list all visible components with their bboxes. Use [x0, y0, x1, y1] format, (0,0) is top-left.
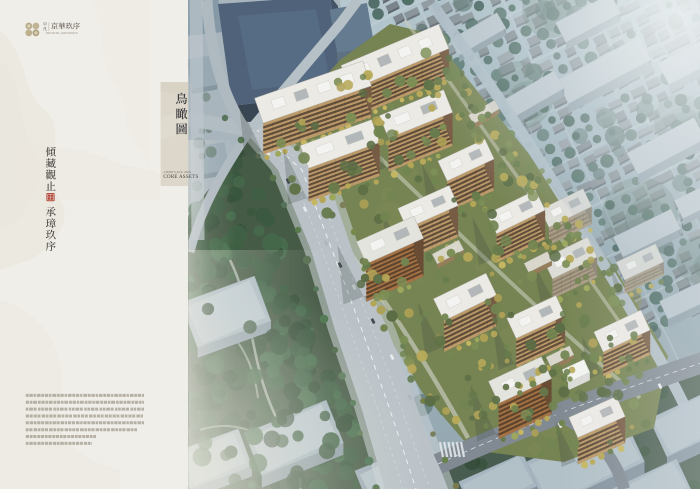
svg-text:A BIRD'S-EYE VIEW: A BIRD'S-EYE VIEW — [164, 170, 192, 174]
svg-text:INFINITE HORIZONS: INFINITE HORIZONS — [46, 31, 78, 35]
svg-text:CORE ASSETS: CORE ASSETS — [163, 175, 198, 180]
